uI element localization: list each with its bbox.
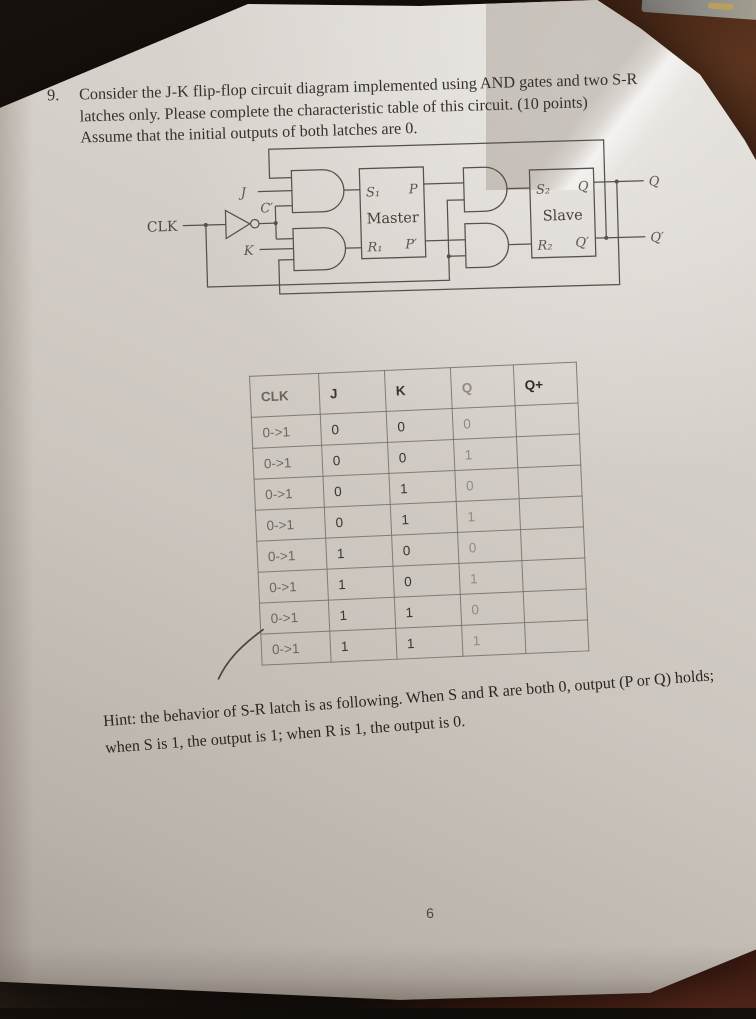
p-prime-wire	[425, 240, 465, 241]
master-label: Master	[366, 210, 419, 227]
notclk-branch-wires	[275, 206, 293, 239]
table-cell	[523, 589, 587, 623]
table-cell: 1	[327, 566, 394, 600]
slave-s-and-gate	[463, 167, 507, 212]
table-cell: 0	[458, 530, 522, 564]
page-content: 9. Consider the J-K flip-flop circuit di…	[0, 0, 756, 1019]
col-header-clk: CLK	[250, 373, 321, 417]
paper-shadow: 9. Consider the J-K flip-flop circuit di…	[0, 0, 756, 1008]
junction-dot	[204, 223, 208, 227]
j-input-wire	[258, 191, 292, 192]
qprime-feedback-wire	[269, 140, 607, 247]
jk-flipflop-circuit-diagram: CLK J K C′ S₁ P Master R₁ P′ S₂ Q Slave …	[130, 122, 675, 322]
table-cell: 0	[452, 406, 516, 440]
k-label: K	[243, 244, 255, 259]
col-header-q: Q	[450, 365, 515, 409]
table-cell: 0	[322, 442, 389, 476]
table-cell: 0->1	[251, 414, 321, 448]
table-cell: 1	[396, 625, 463, 659]
output-q-label: Q	[649, 174, 660, 189]
junction-dot	[274, 221, 278, 225]
s2-label: S₂	[536, 182, 551, 197]
p-wire	[424, 183, 464, 184]
r2-label: R₂	[536, 238, 552, 253]
junction-dot	[604, 236, 608, 240]
table-cell: 0	[455, 468, 519, 502]
j-label: J	[238, 186, 247, 201]
table-cell	[516, 434, 580, 468]
table-cell: 1	[462, 623, 526, 657]
table-cell: 0->1	[253, 445, 323, 479]
table-cell: 0	[460, 592, 524, 626]
table-cell: 1	[390, 501, 457, 535]
r1-label: R₁	[366, 240, 382, 255]
q-output-wire	[594, 181, 644, 182]
p-label: P	[408, 182, 418, 197]
table-cell: 1	[389, 471, 456, 505]
table-cell: 1	[459, 561, 523, 595]
slave-r-and-gate	[465, 223, 509, 268]
table-cell: 1	[328, 597, 395, 631]
k-input-wire	[260, 249, 294, 250]
inverter-bubble	[250, 219, 259, 228]
inverter-gate	[225, 210, 250, 239]
question-number: 9.	[47, 85, 80, 107]
table-cell	[519, 496, 583, 530]
r2-wire	[508, 244, 531, 245]
table-cell: 1	[330, 628, 397, 662]
q-label: Q	[578, 179, 589, 194]
k-and-gate	[293, 227, 346, 270]
table-cell: 0->1	[258, 569, 328, 603]
table-cell: 0	[393, 563, 460, 597]
output-qprime-label: Q′	[650, 230, 664, 245]
hint-block: Hint: the behavior of S-R latch is as fo…	[102, 659, 756, 762]
table-cell: 0	[324, 504, 391, 538]
col-header-k: K	[384, 368, 452, 412]
table-cell: 1	[454, 437, 518, 471]
table-cell	[525, 620, 589, 654]
table-cell: 0	[386, 409, 453, 443]
table-cell: 1	[326, 535, 393, 569]
table-cell: 0->1	[254, 476, 324, 510]
table-cell: 0->1	[255, 507, 325, 541]
j-and-gate	[291, 169, 344, 212]
slave-label: Slave	[542, 208, 582, 225]
junction-dot	[615, 179, 619, 183]
q-prime-label: Q′	[575, 235, 589, 250]
table-cell: 0	[323, 473, 390, 507]
table-cell	[522, 558, 586, 592]
table-cell	[521, 527, 585, 561]
pen-mark	[209, 611, 275, 687]
table-cell: 0	[392, 532, 459, 566]
characteristic-table: CLK J K Q Q+ 0->1 0 0 0 0->1 0 0 1 0	[249, 362, 589, 666]
notclk-label: C′	[260, 201, 273, 216]
table-cell: 1	[456, 499, 520, 533]
page-number: 6	[426, 905, 434, 921]
paper-sheet: 9. Consider the J-K flip-flop circuit di…	[0, 0, 756, 1008]
col-header-qplus: Q+	[513, 362, 578, 406]
table-cell	[518, 465, 582, 499]
table-cell: 1	[394, 594, 461, 628]
table-cell	[515, 403, 579, 437]
s2-wire	[507, 188, 530, 189]
table-cell: 0	[388, 440, 455, 474]
p-prime-label: P′	[404, 237, 417, 252]
qprime-output-wire	[595, 237, 645, 238]
col-header-j: J	[318, 370, 386, 414]
table-cell: 0->1	[257, 538, 327, 572]
clk-label: CLK	[147, 219, 178, 236]
table-cell: 0	[320, 411, 387, 445]
junction-dot	[447, 254, 451, 258]
s1-label: S₁	[366, 185, 381, 200]
